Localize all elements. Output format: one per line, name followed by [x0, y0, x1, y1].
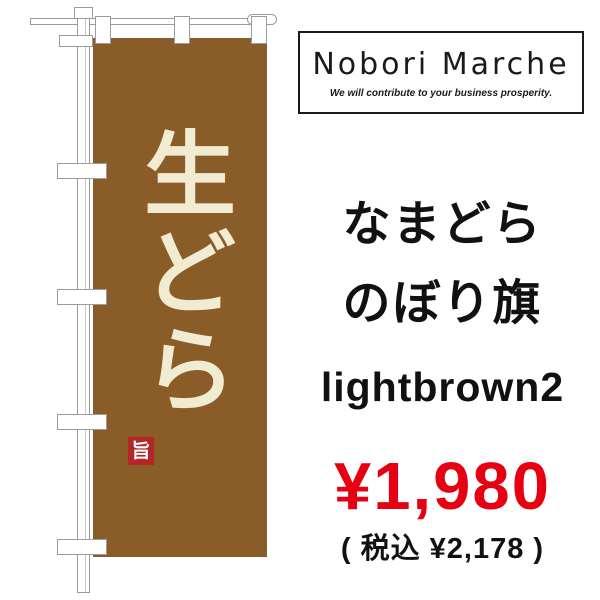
- banner-char-3: ら: [140, 322, 240, 420]
- flag-crossbar: [30, 18, 253, 25]
- brand-name: Nobori Marche: [300, 47, 582, 82]
- banner-side-tab: [57, 289, 107, 305]
- flag-pole-cap: [74, 7, 93, 19]
- banner-top-tab: [95, 16, 111, 44]
- banner-top-tab: [251, 16, 267, 44]
- tax-included-price: ( 税込 ¥2,178 ): [300, 525, 585, 567]
- flag-pole-clamp: [59, 35, 93, 47]
- price: ¥1,980: [300, 448, 585, 525]
- banner-side-tab: [57, 163, 107, 179]
- banner-char-1: 生: [140, 126, 240, 224]
- product-name-line1: なまどら: [300, 184, 585, 254]
- banner-seal-stamp: 旨: [128, 437, 154, 465]
- banner-vertical-title: 生 ど ら: [140, 126, 240, 420]
- banner-top-tab: [174, 16, 190, 44]
- banner-side-tab: [57, 414, 107, 430]
- color-variant-label: lightbrown2: [300, 364, 585, 411]
- product-name-line2: のぼり旗: [300, 263, 585, 333]
- brand-logo-box: Nobori Marche We will contribute to your…: [298, 31, 584, 114]
- banner-side-tab: [57, 539, 107, 555]
- banner-char-2: ど: [140, 224, 240, 322]
- product-image: 生 ど ら 旨 Nobori Marche We will contribute…: [0, 0, 600, 600]
- brand-tagline: We will contribute to your business pros…: [300, 88, 582, 99]
